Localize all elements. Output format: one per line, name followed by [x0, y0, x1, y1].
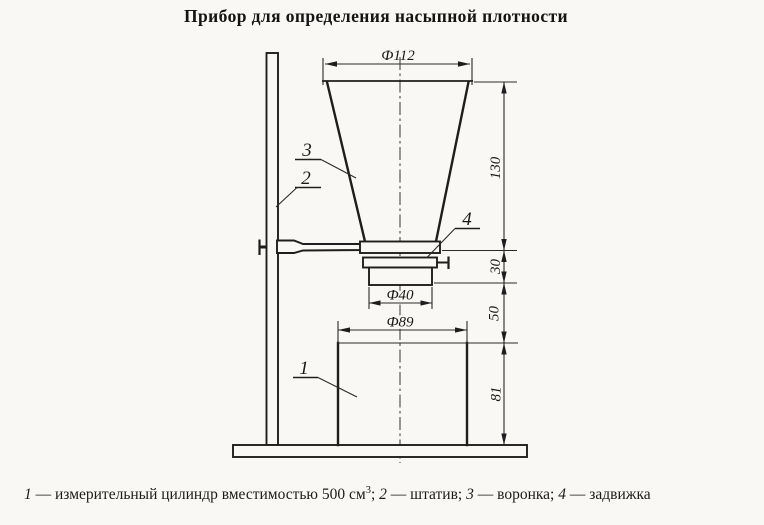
arrowhead: [369, 300, 381, 305]
caption-separator: ;: [371, 486, 379, 503]
label-cylinder: 1: [299, 358, 309, 379]
arrowhead: [338, 327, 350, 332]
stand-base-plate: [233, 445, 527, 457]
figure-page: Прибор для определения насыпной плотност…: [0, 0, 764, 525]
arrowhead: [501, 283, 506, 295]
arrowhead: [421, 300, 433, 305]
label-gate: 4: [462, 209, 472, 230]
caption-text-funnel: — воронка;: [474, 486, 558, 503]
arrowhead: [458, 61, 470, 66]
arrowhead: [501, 82, 506, 94]
dim-value-f89: Ф89: [386, 315, 414, 331]
caption-num-stand: 2: [379, 486, 387, 503]
dim-value-50: 50: [487, 306, 503, 322]
label-funnel: 3: [301, 140, 312, 161]
funnel: [322, 81, 473, 242]
measuring-cylinder: [338, 343, 467, 445]
dim-value-f112: Ф112: [381, 48, 415, 64]
dim-funnel-top-diameter: Ф112: [323, 48, 472, 85]
caption-num-cylinder: 1: [24, 486, 32, 503]
slide-gate: [363, 258, 437, 268]
arrowhead: [501, 332, 506, 344]
arrowhead: [325, 61, 337, 66]
caption-text-cylinder: — измерительный цилиндр вместимостью 500…: [32, 486, 366, 503]
stand: [233, 53, 527, 457]
caption-text-stand: — штатив;: [387, 486, 466, 503]
outlet-tube: [369, 268, 432, 286]
arrowhead: [455, 327, 467, 332]
leader-line: [321, 160, 356, 179]
figure-caption: 1 — измерительный цилиндр вместимостью 5…: [24, 486, 760, 504]
apparatus-drawing: Ф112 130 30 50 81: [0, 0, 764, 525]
gate-assembly: [360, 242, 449, 286]
funnel-collar: [360, 242, 440, 254]
dim-value-f40: Ф40: [386, 288, 414, 304]
caption-text-gate: — задвижка: [566, 486, 651, 503]
caption-num-funnel: 3: [466, 486, 474, 503]
arrowhead: [501, 434, 506, 446]
arrowhead: [501, 239, 506, 251]
caption-num-gate: 4: [558, 486, 566, 503]
dim-cylinder-diameter: Ф89: [338, 315, 467, 344]
funnel-left-wall: [327, 82, 365, 242]
label-stand: 2: [301, 168, 311, 189]
leader-line: [276, 188, 297, 208]
dim-value-30: 30: [488, 259, 504, 276]
arrowhead: [501, 343, 506, 355]
dim-value-130: 130: [488, 156, 504, 179]
dim-value-81: 81: [489, 387, 505, 402]
clamp-arm: [277, 241, 362, 254]
